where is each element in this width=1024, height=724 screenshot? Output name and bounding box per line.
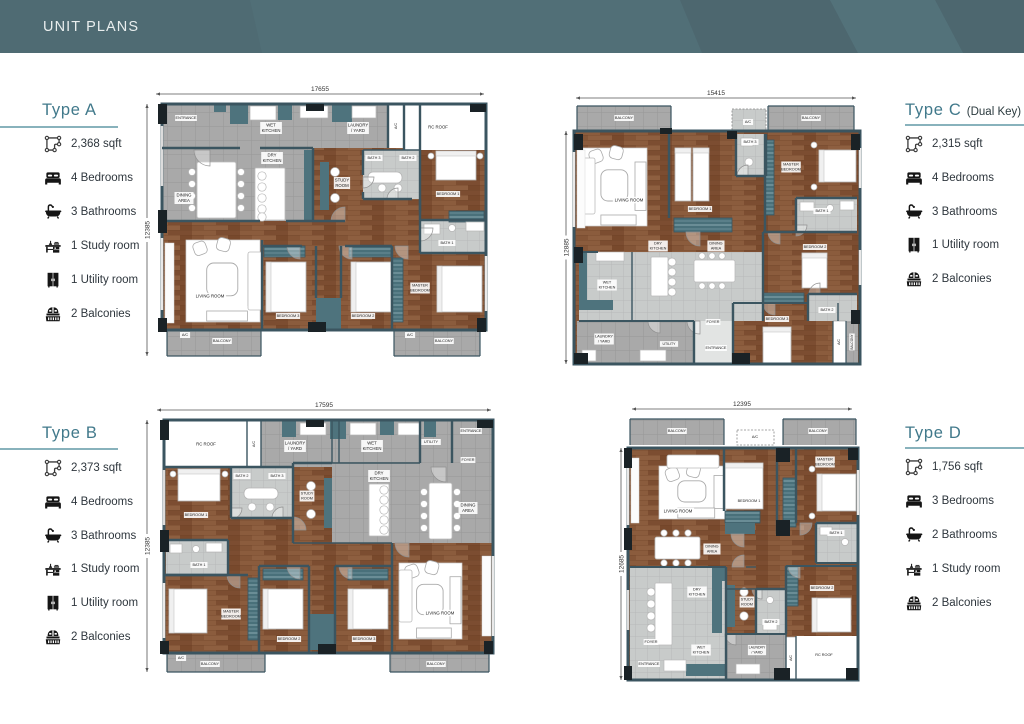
svg-text:STUDY: STUDY — [335, 178, 350, 183]
svg-text:ROOM: ROOM — [301, 497, 313, 501]
svg-text:BEDROOM: BEDROOM — [410, 289, 430, 293]
svg-text:BEDROOM 2: BEDROOM 2 — [278, 637, 301, 641]
svg-text:KITCHEN: KITCHEN — [693, 651, 710, 655]
svg-text:BEDROOM 1: BEDROOM 1 — [738, 499, 761, 503]
svg-text:ENTRANCE: ENTRANCE — [639, 662, 660, 666]
svg-text:A/C: A/C — [394, 123, 398, 130]
svg-text:BEDROOM 1: BEDROOM 1 — [689, 207, 712, 211]
svg-text:BEDROOM 3: BEDROOM 3 — [353, 637, 376, 641]
svg-text:MASTER: MASTER — [817, 458, 833, 462]
svg-text:STUDY: STUDY — [301, 492, 314, 496]
svg-text:A/C: A/C — [789, 655, 793, 661]
svg-text:AREA: AREA — [462, 508, 474, 513]
svg-text:AREA: AREA — [707, 550, 718, 554]
svg-text:LIVING ROOM: LIVING ROOM — [196, 293, 225, 298]
svg-text:BATH 1: BATH 1 — [829, 531, 842, 535]
svg-text:BALCONY: BALCONY — [850, 334, 854, 350]
svg-text:FOYER: FOYER — [461, 458, 474, 462]
svg-text:BEDROOM 2: BEDROOM 2 — [804, 245, 827, 249]
svg-text:12395: 12395 — [733, 401, 751, 408]
svg-text:A/C: A/C — [745, 120, 752, 124]
svg-text:BATH 3: BATH 3 — [367, 156, 380, 160]
svg-text:MASTER: MASTER — [223, 610, 239, 614]
svg-text:KITCHEN: KITCHEN — [689, 593, 706, 597]
svg-text:BEDROOM 2: BEDROOM 2 — [811, 586, 834, 590]
svg-text:MASTER: MASTER — [783, 163, 799, 167]
svg-text:LAUNDRY: LAUNDRY — [595, 335, 614, 339]
svg-text:12885: 12885 — [563, 238, 570, 256]
svg-text:BEDROOM 1: BEDROOM 1 — [437, 192, 460, 196]
svg-text:BEDROOM 3: BEDROOM 3 — [277, 314, 300, 318]
svg-text:15415: 15415 — [707, 90, 725, 97]
svg-text:BATH 2: BATH 2 — [764, 620, 777, 624]
svg-text:DINING: DINING — [709, 242, 722, 246]
svg-text:BEDROOM: BEDROOM — [781, 168, 801, 172]
svg-text:/ YARD: / YARD — [351, 128, 365, 133]
svg-text:12685: 12685 — [618, 555, 625, 573]
svg-text:RC ROOF: RC ROOF — [815, 653, 833, 657]
svg-text:FOYER: FOYER — [644, 640, 657, 644]
svg-text:BATH 2: BATH 2 — [820, 308, 833, 312]
svg-text:MASTER: MASTER — [412, 284, 428, 288]
svg-text:BALCONY: BALCONY — [213, 339, 232, 343]
svg-text:17655: 17655 — [311, 86, 329, 93]
svg-text:BALCONY: BALCONY — [802, 116, 821, 120]
svg-text:BATH 3: BATH 3 — [743, 140, 756, 144]
svg-text:BATH 3: BATH 3 — [270, 474, 283, 478]
svg-text:RC ROOF: RC ROOF — [196, 441, 216, 446]
svg-text:BALCONY: BALCONY — [615, 116, 634, 120]
svg-text:A/C: A/C — [252, 441, 256, 448]
svg-text:BEDROOM 1: BEDROOM 1 — [185, 513, 208, 517]
svg-text:12385: 12385 — [144, 537, 151, 555]
svg-text:STUDY: STUDY — [741, 598, 754, 602]
svg-text:A/C: A/C — [407, 333, 414, 337]
svg-text:LIVING ROOM: LIVING ROOM — [664, 508, 693, 513]
svg-text:WET: WET — [367, 441, 377, 446]
svg-text:WET: WET — [697, 646, 706, 650]
svg-text:BALCONY: BALCONY — [427, 662, 446, 666]
svg-text:BALCONY: BALCONY — [668, 429, 687, 433]
svg-text:BALCONY: BALCONY — [435, 339, 454, 343]
svg-text:BALCONY: BALCONY — [201, 662, 220, 666]
svg-text:KITCHEN: KITCHEN — [363, 446, 382, 451]
svg-text:ROOM: ROOM — [335, 183, 349, 188]
svg-text:DRY: DRY — [268, 153, 277, 158]
svg-text:BEDROOM 3: BEDROOM 3 — [766, 317, 789, 321]
svg-text:/ YARD: / YARD — [598, 340, 611, 344]
svg-text:A/C: A/C — [182, 333, 189, 337]
svg-text:ENTRANCE: ENTRANCE — [176, 116, 197, 120]
svg-text:LIVING ROOM: LIVING ROOM — [426, 610, 455, 615]
svg-text:BATH 1: BATH 1 — [815, 209, 828, 213]
svg-text:LIVING ROOM: LIVING ROOM — [615, 197, 644, 202]
svg-text:RC ROOF: RC ROOF — [428, 124, 448, 129]
svg-text:UTILITY: UTILITY — [424, 440, 439, 444]
svg-text:A/C: A/C — [752, 435, 759, 439]
svg-text:UTILITY: UTILITY — [662, 342, 676, 346]
svg-text:/ YARD: / YARD — [751, 650, 763, 654]
svg-text:DRY: DRY — [654, 242, 662, 246]
svg-text:ROOM: ROOM — [741, 603, 753, 607]
svg-text:AREA: AREA — [711, 247, 722, 251]
svg-text:LAUNDRY: LAUNDRY — [749, 646, 766, 650]
svg-text:FOYER: FOYER — [706, 320, 719, 324]
svg-text:DRY: DRY — [693, 588, 701, 592]
svg-text:KITCHEN: KITCHEN — [599, 286, 616, 290]
svg-text:DRY: DRY — [375, 471, 384, 476]
svg-text:BATH 2: BATH 2 — [401, 156, 414, 160]
svg-text:/ YARD: / YARD — [288, 446, 302, 451]
svg-text:DINING: DINING — [176, 193, 192, 198]
svg-text:DINING: DINING — [460, 503, 476, 508]
svg-text:BATH 2: BATH 2 — [235, 474, 248, 478]
svg-text:BALCONY: BALCONY — [809, 429, 828, 433]
svg-text:KITCHEN: KITCHEN — [262, 128, 281, 133]
svg-text:A/C: A/C — [178, 656, 185, 660]
svg-text:DINING: DINING — [705, 545, 718, 549]
svg-text:KITCHEN: KITCHEN — [650, 247, 667, 251]
svg-text:KITCHEN: KITCHEN — [370, 476, 389, 481]
svg-text:BATH 1: BATH 1 — [192, 563, 205, 567]
svg-text:BEDROOM 2: BEDROOM 2 — [352, 314, 375, 318]
svg-text:ENTRANCE: ENTRANCE — [706, 346, 727, 350]
svg-text:WET: WET — [603, 281, 612, 285]
svg-text:AREA: AREA — [178, 198, 190, 203]
svg-text:12385: 12385 — [144, 221, 151, 239]
svg-text:LAUNDRY: LAUNDRY — [285, 441, 306, 446]
svg-text:LAUNDRY: LAUNDRY — [348, 123, 369, 128]
svg-text:A/C: A/C — [837, 339, 841, 345]
svg-text:WET: WET — [266, 123, 276, 128]
svg-text:BATH 1: BATH 1 — [440, 241, 453, 245]
svg-text:ENTRANCE: ENTRANCE — [461, 429, 482, 433]
svg-text:KITCHEN: KITCHEN — [263, 158, 282, 163]
svg-text:BEDROOM: BEDROOM — [221, 615, 241, 619]
svg-text:17595: 17595 — [315, 402, 333, 409]
svg-text:BEDROOM: BEDROOM — [815, 463, 835, 467]
